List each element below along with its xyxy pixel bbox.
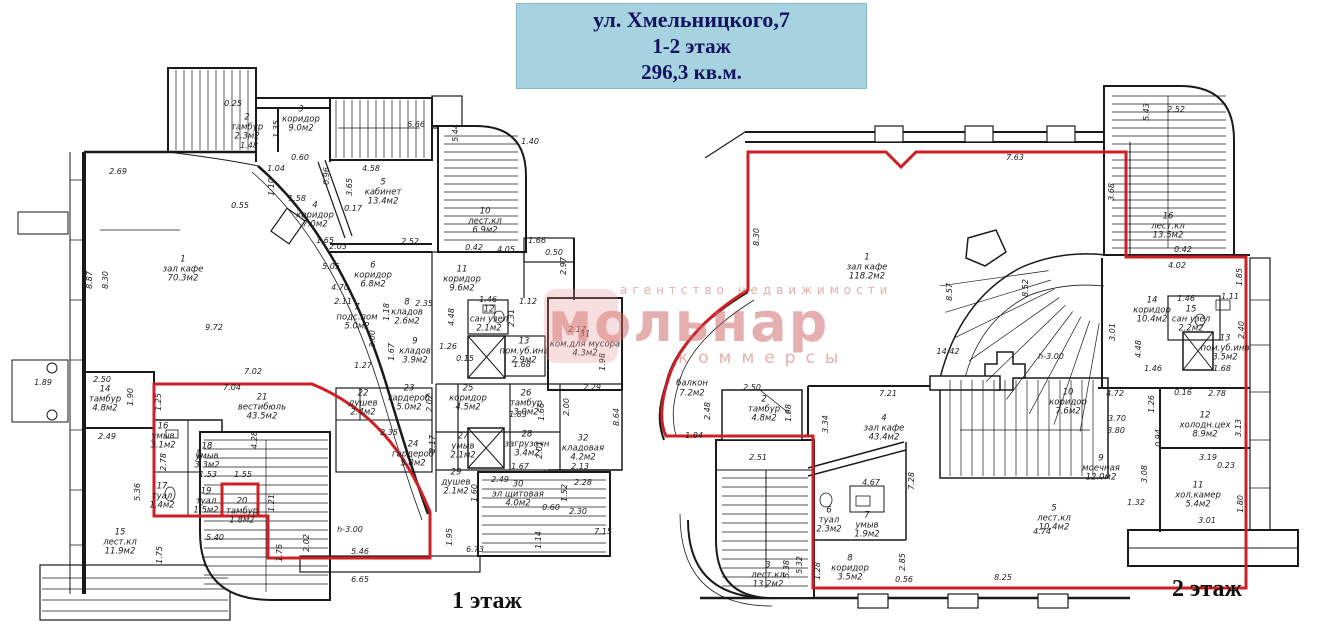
dimension-label: 3.00 bbox=[369, 330, 377, 348]
dimension-label: 0.42 bbox=[1174, 246, 1192, 254]
room-label: 25коридор4.5м2 bbox=[449, 385, 487, 414]
room-label: 9моечная12.0м2 bbox=[1082, 455, 1120, 484]
dimension-label: 4.48 bbox=[1135, 340, 1143, 358]
dimension-label: 5.32 bbox=[796, 556, 804, 574]
dimension-label: 5.44 bbox=[452, 124, 460, 142]
dimension-label: 0.50 bbox=[545, 249, 563, 257]
dimension-label: 14.42 bbox=[937, 348, 960, 356]
dimension-label: 0.16 bbox=[1174, 389, 1192, 397]
room-label: 1зал кафе70.3м2 bbox=[163, 256, 204, 285]
title-address: ул. Хмельницкого,7 bbox=[517, 7, 866, 33]
dimension-label: 2.02 bbox=[426, 394, 434, 412]
dimension-label: 2.35 bbox=[380, 429, 398, 437]
dimension-label: 0.94 bbox=[1155, 429, 1163, 447]
dimension-label: 6.66 bbox=[407, 121, 425, 129]
room-label: 6туал2.3м2 bbox=[816, 507, 841, 536]
room-label: 9кладов3.9м2 bbox=[399, 338, 431, 367]
room-label: 27умыв2.1м2 bbox=[450, 433, 475, 462]
dimension-label: 2.52 bbox=[401, 238, 419, 246]
dimension-label: 1.11 bbox=[1221, 293, 1239, 301]
dimension-label: 8.87 bbox=[86, 271, 94, 289]
dimension-label: 3.80 bbox=[1107, 427, 1125, 435]
caption-floor1: 1 этаж bbox=[452, 588, 522, 615]
room-label: 7подс.пом5.0м2 bbox=[336, 304, 377, 333]
dimension-label: 1.10 bbox=[268, 178, 276, 196]
room-label: 11коридор9.6м2 bbox=[443, 266, 481, 295]
dimension-label: 1.95 bbox=[446, 528, 454, 546]
room-label: 15лест.кл11.9м2 bbox=[103, 529, 137, 558]
room-label: 14тамбур4.8м2 bbox=[89, 386, 121, 415]
dimension-label: 4.70 bbox=[331, 284, 349, 292]
dimension-label: 8.25 bbox=[994, 574, 1012, 582]
dimension-label: 5.46 bbox=[351, 548, 369, 556]
dimension-label: 2.28 bbox=[574, 479, 592, 487]
dimension-label: 0.60 bbox=[542, 504, 560, 512]
dimension-label: 1.14 bbox=[535, 531, 543, 549]
dimension-label: 1.75 bbox=[156, 546, 164, 564]
dimension-label: 1.26 bbox=[1148, 395, 1156, 413]
dimension-label: 2.51 bbox=[749, 454, 767, 462]
dimension-label: 1.46 bbox=[1177, 295, 1195, 303]
dimension-label: 0.25 bbox=[224, 100, 242, 108]
room-label: 19туал1.5м2 bbox=[193, 488, 218, 517]
dimension-label: 1.52 bbox=[561, 484, 569, 502]
dimension-label: 4.48 bbox=[448, 308, 456, 326]
dimension-label: 1.55 bbox=[234, 471, 252, 479]
dimension-label: 1.58 bbox=[288, 195, 306, 203]
room-label: 2тамбур2.3м2 bbox=[231, 114, 263, 143]
dimension-label: 1.98 bbox=[785, 404, 793, 422]
dimension-label: 8.30 bbox=[753, 228, 761, 246]
dimension-label: 1.89 bbox=[34, 379, 52, 387]
dimension-label: 7.04 bbox=[223, 384, 241, 392]
title-area: 296,3 кв.м. bbox=[517, 60, 866, 85]
dimension-label: 1.67 bbox=[511, 463, 529, 471]
room-label: 13пом.уб.инв3.5м2 bbox=[1201, 335, 1250, 364]
dimension-label: 1.28 bbox=[814, 562, 822, 580]
dimension-label: 1.35 bbox=[273, 120, 281, 138]
dimension-label: 2.00 bbox=[563, 398, 571, 416]
room-label: 7умыв1.9м2 bbox=[854, 512, 879, 541]
dimension-label: 9.72 bbox=[205, 324, 223, 332]
dimension-label: 2.31 bbox=[508, 309, 516, 327]
dimension-label: 1.12 bbox=[519, 298, 537, 306]
dimension-label: 1.67 bbox=[388, 343, 396, 361]
dimension-label: 3.19 bbox=[1199, 454, 1217, 462]
dimension-label: 1.25 bbox=[155, 393, 163, 411]
room-label: 2тамбур4.8м2 bbox=[748, 396, 780, 425]
dimension-label: 1.53 bbox=[199, 471, 217, 479]
room-label: 4зал кафе43.4м2 bbox=[864, 415, 905, 444]
dimension-label: 0.96 bbox=[323, 167, 331, 185]
dimension-label: 1.60 bbox=[471, 484, 479, 502]
dimension-label: 4.72 bbox=[1106, 390, 1124, 398]
dimension-label: 3.13 bbox=[1235, 419, 1243, 437]
dimension-label: 3.65 bbox=[346, 178, 354, 196]
room-label: 5кабинет13.4м2 bbox=[365, 179, 402, 208]
dimension-label: 2.52 bbox=[1167, 106, 1185, 114]
dimension-label: 3.01 bbox=[1198, 517, 1216, 525]
dimension-label: h-3.00 bbox=[337, 526, 363, 534]
room-label: 16лест.кл13.5м2 bbox=[1151, 213, 1185, 242]
dimension-label: 1.27 bbox=[354, 362, 372, 370]
room-label: 23гардероб5.0м2 bbox=[388, 385, 430, 414]
dimension-label: 1.83 bbox=[509, 411, 527, 419]
dimension-label: 1.32 bbox=[1127, 499, 1145, 507]
dimension-label: 4.67 bbox=[862, 479, 880, 487]
floorplan-page: 1зал кафе70.3м22тамбур2.3м23коридор9.0м2… bbox=[0, 0, 1339, 626]
dimension-label: 1.68 bbox=[513, 361, 531, 369]
room-label: 30эл щитовая4.0м2 bbox=[492, 481, 544, 510]
title-floors: 1-2 этаж bbox=[517, 34, 866, 59]
dimension-label: 2.50 bbox=[743, 384, 761, 392]
dimension-label: 3.34 bbox=[822, 415, 830, 433]
dimension-label: 7.28 bbox=[908, 472, 916, 490]
dimension-label: 1.66 bbox=[528, 237, 546, 245]
dimension-label: 3.68 bbox=[1108, 183, 1116, 201]
dimension-label: 6.65 bbox=[351, 576, 369, 584]
dimension-label: 1.84 bbox=[685, 432, 703, 440]
room-label: 10лест.кл6.9м2 bbox=[468, 208, 502, 237]
room-label: 12сан узел2.1м2 bbox=[470, 306, 508, 335]
room-label: балкон7.2м2 bbox=[676, 379, 708, 398]
dimension-label: 0.55 bbox=[231, 202, 249, 210]
dimension-label: 3.08 bbox=[1141, 465, 1149, 483]
dimension-label: 1.90 bbox=[127, 388, 135, 406]
dimension-label: 2.78 bbox=[160, 453, 168, 471]
dimension-label: 0.56 bbox=[895, 576, 913, 584]
dimension-label: 1.21 bbox=[268, 494, 276, 512]
dimension-label: 0.17 bbox=[344, 205, 362, 213]
dimension-label: 0.42 bbox=[465, 244, 483, 252]
dimension-label: 1.66 bbox=[538, 403, 546, 421]
dimension-label: 5.36 bbox=[134, 483, 142, 501]
dimension-label: 3.01 bbox=[1109, 323, 1117, 341]
dimension-label: 5.43 bbox=[1143, 103, 1151, 121]
room-label: 18умыв3.3м2 bbox=[194, 443, 219, 472]
room-label: 32кладовая4.2м2 bbox=[562, 435, 604, 464]
dimension-label: 8.64 bbox=[613, 408, 621, 426]
dimension-label: 1.18 bbox=[383, 303, 391, 321]
room-label: 16умыв3.1м2 bbox=[150, 423, 175, 452]
dimension-label: 2.01 bbox=[536, 441, 544, 459]
caption-floor2: 2 этаж bbox=[1172, 576, 1242, 603]
dimension-label: 4.74 bbox=[1033, 528, 1051, 536]
room-label: 4коридор7.0м2 bbox=[296, 202, 334, 231]
room-label: 12холодн.цех8.9м2 bbox=[1179, 412, 1230, 441]
dimension-label: 0.23 bbox=[1217, 462, 1235, 470]
dimension-label: 1.26 bbox=[439, 343, 457, 351]
room-label: 3коридор9.0м2 bbox=[282, 106, 320, 135]
dimension-label: 5.05 bbox=[322, 263, 340, 271]
dimension-label: 1.98 bbox=[599, 353, 607, 371]
dimension-label: 2.49 bbox=[98, 433, 116, 441]
dimension-label: 0.15 bbox=[456, 355, 474, 363]
dimension-label: 2.50 bbox=[93, 376, 111, 384]
room-label: 6коридор6.8м2 bbox=[354, 262, 392, 291]
dimension-label: 1.46 bbox=[479, 296, 497, 304]
room-label: 21вестибюль43.5м2 bbox=[238, 394, 286, 423]
dimension-label: 5.40 bbox=[206, 534, 224, 542]
dimension-label: 1.46 bbox=[1144, 365, 1162, 373]
dimension-label: 2.35 bbox=[415, 300, 433, 308]
dimension-label: 4.28 bbox=[251, 431, 259, 449]
dimension-label: 1.80 bbox=[1237, 495, 1245, 513]
dimension-label: h-3.00 bbox=[1038, 353, 1064, 361]
dimension-label: 5.38 bbox=[783, 560, 791, 578]
dimension-label: 1.04 bbox=[267, 165, 285, 173]
room-label: 8коридор3.5м2 bbox=[831, 555, 869, 584]
dimension-label: 7.21 bbox=[879, 390, 897, 398]
dimension-label: 2.17 bbox=[429, 435, 437, 453]
room-label: 14коридор10.4м2 bbox=[1133, 297, 1171, 326]
dimension-label: 1.68 bbox=[1213, 365, 1231, 373]
room-label: 31ком.для мусора4.3м2 bbox=[550, 331, 621, 360]
room-label: 20тамбур1.8м2 bbox=[226, 498, 258, 527]
dimension-label: 2.49 bbox=[491, 476, 509, 484]
dimension-label: 2.02 bbox=[303, 534, 311, 552]
dimension-label: 2.13 bbox=[571, 463, 589, 471]
title-box: ул. Хмельницкого,7 1-2 этаж 296,3 кв.м. bbox=[516, 3, 867, 89]
dimension-label: 1.40 bbox=[521, 138, 539, 146]
dimension-label: 2.48 bbox=[704, 402, 712, 420]
dimension-label: 1.85 bbox=[1236, 268, 1244, 286]
dimension-label: 8.52 bbox=[1022, 279, 1030, 297]
dimension-label: 4.02 bbox=[1168, 262, 1186, 270]
dimension-label: 2.78 bbox=[1208, 390, 1226, 398]
room-label: 1зал кафе118.2м2 bbox=[847, 254, 888, 283]
dimension-label: 2.30 bbox=[569, 508, 587, 516]
room-label: 17туал1.4м2 bbox=[149, 483, 174, 512]
dimension-label: 2.85 bbox=[899, 553, 907, 571]
dimension-label: 4.58 bbox=[362, 165, 380, 173]
dimension-label: 8.57 bbox=[946, 283, 954, 301]
room-label: 22душев2.4м2 bbox=[349, 390, 378, 419]
dimension-label: 2.69 bbox=[109, 168, 127, 176]
dimension-label: 2.40 bbox=[1238, 321, 1246, 339]
dimension-label: 7.02 bbox=[244, 368, 262, 376]
dimension-label: 6.73 bbox=[466, 546, 484, 554]
dimension-label: 2.11 bbox=[334, 298, 352, 306]
room-label: 10коридор7.6м2 bbox=[1049, 389, 1087, 418]
dimension-label: 7.15 bbox=[594, 528, 612, 536]
room-label: 15сан узел2.2м2 bbox=[1172, 306, 1210, 335]
dimension-label: 0.60 bbox=[291, 154, 309, 162]
dimension-label: 1.76 bbox=[276, 544, 284, 562]
dimension-label: 7.63 bbox=[1006, 154, 1024, 162]
room-label: 3лест.кл13.2м2 bbox=[751, 562, 785, 591]
dimension-label: 2.17 bbox=[568, 326, 586, 334]
dimension-label: 1.48 bbox=[240, 142, 258, 150]
dimension-label: 3.70 bbox=[1108, 415, 1126, 423]
dimension-label: 8.30 bbox=[102, 271, 110, 289]
dimension-label: 4.05 bbox=[497, 246, 515, 254]
dimension-label: 1.65 bbox=[316, 237, 334, 245]
dimension-label: 2.97 bbox=[560, 257, 568, 275]
dimension-label: 2.29 bbox=[583, 384, 601, 392]
room-label: 29душев2.1м2 bbox=[442, 469, 471, 498]
room-label: 11хол.камер5.4м2 bbox=[1175, 482, 1221, 511]
